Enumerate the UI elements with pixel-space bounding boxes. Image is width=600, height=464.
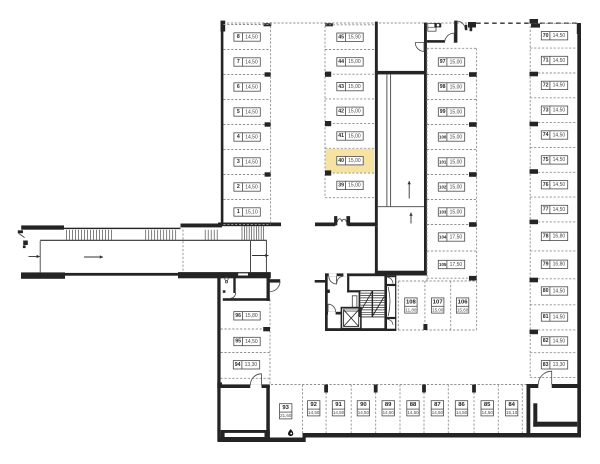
svg-text:14,50: 14,50 [432, 410, 444, 415]
svg-text:83: 83 [543, 362, 549, 368]
svg-text:14,50: 14,50 [553, 207, 566, 213]
svg-text:7: 7 [237, 59, 240, 65]
svg-text:21,60: 21,60 [280, 413, 292, 418]
svg-text:15,00: 15,00 [450, 159, 463, 165]
svg-text:8: 8 [237, 34, 240, 40]
svg-text:79: 79 [543, 262, 549, 268]
svg-text:15,00: 15,00 [348, 158, 361, 164]
svg-text:76: 76 [543, 182, 549, 188]
svg-text:14,50: 14,50 [407, 410, 419, 415]
svg-text:15,90: 15,90 [348, 35, 361, 41]
svg-text:87: 87 [434, 402, 441, 408]
svg-text:103: 103 [439, 210, 447, 215]
svg-text:98: 98 [440, 84, 446, 90]
svg-text:15,10: 15,10 [245, 209, 258, 215]
svg-text:14,50: 14,50 [245, 84, 258, 90]
svg-text:104: 104 [439, 235, 447, 240]
svg-text:14,50: 14,50 [245, 109, 258, 115]
svg-text:93: 93 [282, 405, 289, 411]
svg-text:14,50: 14,50 [333, 410, 345, 415]
svg-text:14,50: 14,50 [308, 410, 320, 415]
svg-text:11,80: 11,80 [405, 307, 416, 312]
svg-text:14,50: 14,50 [553, 108, 566, 114]
svg-text:2: 2 [237, 184, 240, 190]
svg-text:108: 108 [406, 299, 417, 305]
svg-text:14,50: 14,50 [245, 34, 258, 40]
svg-text:4: 4 [237, 134, 240, 140]
svg-text:5: 5 [237, 109, 240, 115]
svg-text:91: 91 [335, 402, 342, 408]
svg-text:89: 89 [385, 402, 392, 408]
svg-text:14,50: 14,50 [553, 338, 566, 344]
svg-text:16,80: 16,80 [553, 234, 566, 240]
svg-text:15,10: 15,10 [506, 410, 518, 415]
svg-text:86: 86 [458, 402, 465, 408]
svg-text:101: 101 [439, 160, 447, 165]
svg-text:39: 39 [338, 183, 344, 189]
svg-text:14,50: 14,50 [358, 410, 370, 415]
svg-text:14,50: 14,50 [245, 184, 258, 190]
svg-text:13,30: 13,30 [553, 362, 566, 368]
svg-text:41: 41 [338, 133, 344, 139]
svg-text:15,80: 15,80 [245, 313, 258, 319]
svg-text:90: 90 [360, 402, 367, 408]
svg-text:88: 88 [410, 402, 417, 408]
svg-text:73: 73 [543, 107, 549, 113]
svg-text:15,00: 15,00 [450, 84, 463, 90]
svg-text:85: 85 [484, 402, 491, 408]
svg-text:81: 81 [543, 314, 549, 320]
svg-text:15,00: 15,00 [450, 134, 463, 140]
svg-text:13,30: 13,30 [245, 362, 258, 368]
svg-text:78: 78 [543, 234, 549, 240]
svg-text:72: 72 [543, 83, 549, 89]
svg-text:80: 80 [543, 288, 549, 294]
svg-text:82: 82 [543, 338, 549, 344]
svg-text:74: 74 [543, 132, 549, 138]
svg-text:3: 3 [237, 159, 240, 165]
svg-text:77: 77 [543, 207, 549, 213]
svg-text:102: 102 [439, 185, 447, 190]
svg-text:15,00: 15,00 [450, 184, 463, 190]
svg-text:14,50: 14,50 [482, 410, 494, 415]
svg-text:15,00: 15,00 [348, 84, 361, 90]
svg-text:14,50: 14,50 [383, 410, 395, 415]
svg-text:97: 97 [440, 59, 446, 65]
svg-text:15,00: 15,00 [450, 59, 463, 65]
svg-text:14,50: 14,50 [456, 410, 468, 415]
svg-text:15,00: 15,00 [348, 59, 361, 65]
svg-text:95: 95 [235, 339, 241, 345]
svg-text:94: 94 [235, 362, 241, 368]
svg-text:1: 1 [237, 209, 240, 215]
svg-text:14,50: 14,50 [553, 132, 566, 138]
svg-text:14,50: 14,50 [553, 157, 566, 163]
svg-text:71: 71 [543, 58, 549, 64]
svg-text:15,00: 15,00 [450, 209, 463, 215]
svg-text:70: 70 [543, 33, 549, 39]
svg-text:17,50: 17,50 [450, 262, 463, 268]
svg-text:15,00: 15,00 [450, 109, 463, 115]
svg-text:15,00: 15,00 [348, 183, 361, 189]
svg-text:105: 105 [439, 262, 447, 267]
svg-text:84: 84 [508, 402, 515, 408]
svg-text:14,50: 14,50 [553, 58, 566, 64]
svg-text:75: 75 [543, 157, 549, 163]
svg-text:14,50: 14,50 [245, 339, 258, 345]
svg-text:6: 6 [237, 84, 240, 90]
svg-text:14,50: 14,50 [245, 159, 258, 165]
svg-text:106: 106 [458, 299, 469, 305]
svg-text:99: 99 [440, 109, 446, 115]
svg-text:16,80: 16,80 [553, 262, 566, 268]
svg-text:14,50: 14,50 [553, 182, 566, 188]
svg-text:96: 96 [235, 313, 241, 319]
svg-text:42: 42 [338, 109, 344, 115]
svg-text:17,50: 17,50 [450, 234, 463, 240]
svg-text:44: 44 [338, 59, 344, 65]
svg-text:107: 107 [433, 299, 444, 305]
svg-text:40: 40 [338, 158, 344, 164]
svg-text:100: 100 [439, 135, 447, 140]
svg-text:15,00: 15,00 [348, 109, 361, 115]
svg-text:15,00: 15,00 [348, 133, 361, 139]
svg-text:14,50: 14,50 [553, 83, 566, 89]
svg-text:15,00: 15,00 [432, 307, 444, 312]
svg-text:14,50: 14,50 [245, 59, 258, 65]
svg-text:15,60: 15,60 [457, 307, 469, 312]
svg-text:14,50: 14,50 [245, 134, 258, 140]
svg-text:43: 43 [338, 84, 344, 90]
svg-text:14,50: 14,50 [553, 33, 566, 39]
svg-text:14,50: 14,50 [553, 288, 566, 294]
svg-text:92: 92 [310, 402, 317, 408]
svg-text:45: 45 [338, 34, 344, 40]
svg-text:14,50: 14,50 [553, 314, 566, 320]
